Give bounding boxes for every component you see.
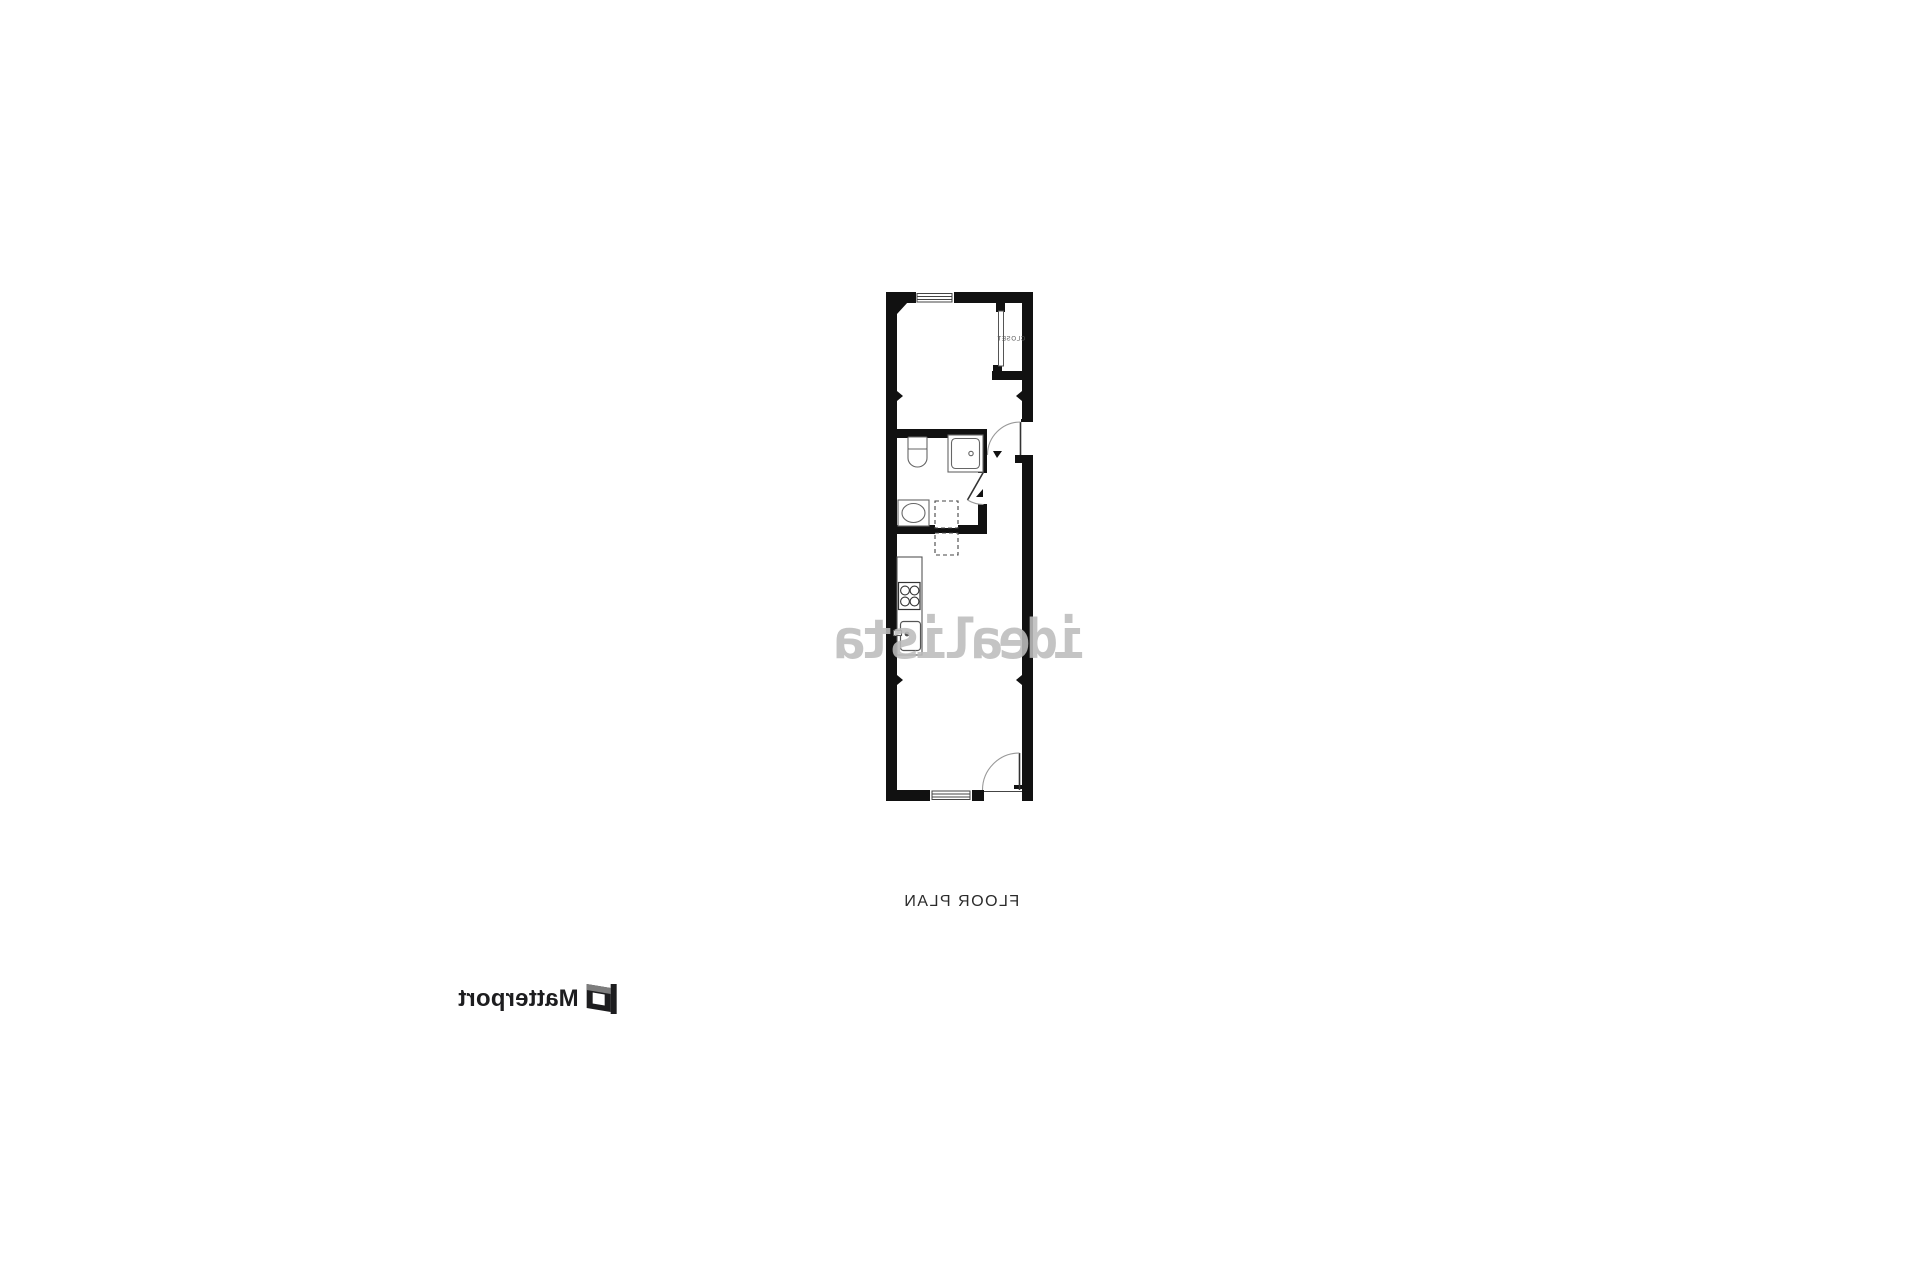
- toilet-tank: [908, 437, 927, 449]
- shower-inner: [952, 439, 980, 469]
- entry-door-marker: [993, 451, 1002, 458]
- toilet-bowl: [908, 449, 927, 467]
- top-window-pane: [917, 297, 952, 300]
- burner-icon: [901, 597, 910, 606]
- wall-left: [886, 292, 897, 801]
- entry-door-gap: [1021, 422, 1034, 455]
- burner-icon: [910, 597, 919, 606]
- wall-marker-left-upper: [897, 391, 903, 401]
- matterport-branding: Matterport: [458, 981, 618, 1017]
- wall-right: [1022, 292, 1033, 801]
- wall-marker-right-lower: [1016, 675, 1022, 685]
- wall-openings: [916, 291, 1034, 802]
- walls: [886, 292, 1033, 801]
- entry-door-arc: [988, 422, 1021, 455]
- wall-top: [886, 292, 1033, 303]
- wall-marker-right-upper: [1016, 391, 1022, 401]
- entry-door-hinge-stub: [1015, 455, 1027, 463]
- dashed-appliance-upper: [935, 501, 958, 528]
- burner-icon: [910, 586, 919, 595]
- matterport-logo-icon: [586, 982, 618, 1016]
- doors: [968, 311, 1021, 790]
- bathroom-door-marker: [976, 489, 983, 497]
- idealista-watermark: idealista: [821, 608, 1103, 671]
- bottom-window-pane: [932, 794, 970, 797]
- wall-corner-step: [897, 302, 908, 314]
- bottom-door-gap: [984, 789, 1022, 802]
- wall-marker-left-lower: [897, 675, 903, 685]
- windows: [917, 294, 1022, 800]
- floor-plan-caption: FLOOR PLAN: [861, 893, 1061, 911]
- shower-drain: [969, 451, 973, 455]
- dashed-appliance-lower: [935, 533, 958, 555]
- bottom-door-arc: [983, 753, 1020, 790]
- bathroom-door-arc: [968, 500, 984, 505]
- closet-label: CLOSET: [997, 336, 1025, 343]
- matterport-logo-text: Matterport: [458, 985, 579, 1013]
- floor-plan-page: CLOSET idealista FLOOR PLAN Matterport: [0, 0, 1920, 1280]
- washing-machine-drum: [902, 504, 925, 523]
- burner-icon: [901, 586, 910, 595]
